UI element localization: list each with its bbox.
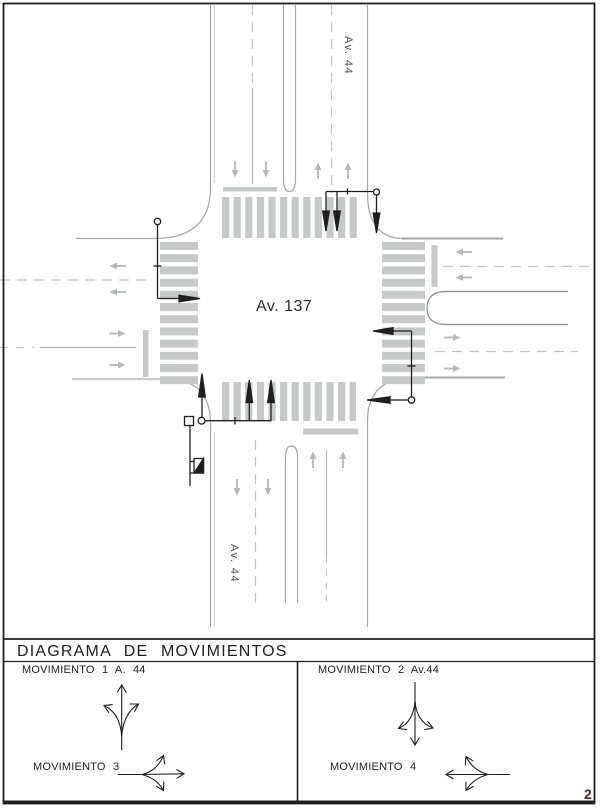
crosswalk-east xyxy=(382,242,425,384)
movement-1-symbol xyxy=(104,685,139,750)
stop-bar-east xyxy=(432,245,438,287)
movement-4-label: MOVIMIENTO 4 xyxy=(330,761,416,773)
flow-arrow-east-left-1 xyxy=(456,249,473,256)
east-road xyxy=(402,239,590,378)
flow-arrow-north-up-2 xyxy=(345,163,352,180)
signal-node-circle xyxy=(374,189,380,195)
movement-3-label: MOVIMIENTO 3 xyxy=(33,761,119,773)
flow-arrow-east-left-2 xyxy=(456,274,473,281)
flow-arrow-south-down-1 xyxy=(234,479,241,496)
signal-node-circle xyxy=(154,218,160,224)
movement-1-label: MOVIMIENTO 1 A. 44 xyxy=(22,664,146,676)
crosswalk-west xyxy=(160,242,198,384)
signal-node-circle xyxy=(198,417,205,424)
page-number: 2 xyxy=(584,786,592,802)
north-median xyxy=(284,5,296,192)
crosswalk-south xyxy=(222,382,356,421)
movement-2-label: MOVIMIENTO 2 Av.44 xyxy=(318,664,439,676)
cross-road-label-top: Av. 44 xyxy=(342,36,354,75)
flow-arrow-west-right-2 xyxy=(109,362,126,369)
flow-arrow-north-down-1 xyxy=(232,161,239,178)
movement-2-symbol xyxy=(399,682,434,745)
stop-bar-north xyxy=(223,187,277,192)
east-median-island xyxy=(427,292,568,325)
flow-arrow-south-up-1 xyxy=(310,452,317,469)
flow-arrow-north-down-2 xyxy=(263,161,270,178)
flow-arrow-south-up-2 xyxy=(340,452,347,469)
flow-arrow-west-right-1 xyxy=(109,330,126,337)
signal-node-circle xyxy=(408,397,414,403)
south-median xyxy=(286,446,298,603)
signal-flag-icon xyxy=(194,459,204,474)
plan-sheet: Av. 137 Av. 44 Av. 44 DIAGRAMA DE MOVIMI… xyxy=(0,0,600,809)
flow-arrow-east-right-1 xyxy=(444,334,461,341)
movement-4-symbol xyxy=(446,757,510,791)
cross-road-label-bottom: Av. 44 xyxy=(228,544,240,583)
flow-arrow-west-left-1 xyxy=(110,263,127,270)
flow-arrow-west-left-2 xyxy=(110,289,127,296)
flow-arrow-south-down-2 xyxy=(265,479,272,496)
controller-box-icon xyxy=(185,417,194,426)
intersection-drawing xyxy=(0,0,600,809)
movements-section-title: DIAGRAMA DE MOVIMIENTOS xyxy=(17,643,288,661)
stop-bar-west xyxy=(143,330,149,377)
stop-bar-south xyxy=(303,429,358,435)
flow-arrow-east-right-2 xyxy=(444,365,461,372)
flow-arrow-north-up-1 xyxy=(315,163,322,180)
movement-3-symbol xyxy=(118,756,184,791)
main-road-label: Av. 137 xyxy=(256,298,312,316)
